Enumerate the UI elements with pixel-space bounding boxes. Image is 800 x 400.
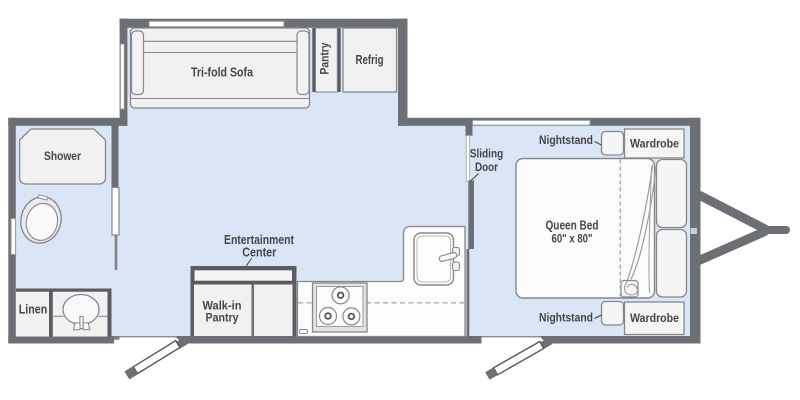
svg-text:Refrig: Refrig: [356, 53, 384, 67]
svg-text:Queen Bed: Queen Bed: [546, 218, 599, 233]
svg-text:Door: Door: [475, 160, 498, 174]
svg-text:Wardrobe: Wardrobe: [630, 311, 679, 325]
svg-text:60" x 80": 60" x 80": [552, 232, 593, 246]
svg-text:Walk-in: Walk-in: [203, 301, 242, 313]
svg-text:Tri-fold Sofa: Tri-fold Sofa: [191, 65, 254, 80]
svg-text:Nightstand: Nightstand: [539, 135, 593, 147]
svg-text:Pantry: Pantry: [320, 42, 332, 75]
svg-text:Center: Center: [242, 246, 276, 260]
svg-text:Pantry: Pantry: [206, 313, 240, 325]
svg-text:Shower: Shower: [44, 151, 81, 163]
svg-text:Linen: Linen: [19, 303, 48, 317]
svg-text:Wardrobe: Wardrobe: [630, 137, 679, 151]
svg-text:Nightstand: Nightstand: [539, 313, 593, 325]
svg-text:Sliding: Sliding: [470, 147, 504, 161]
